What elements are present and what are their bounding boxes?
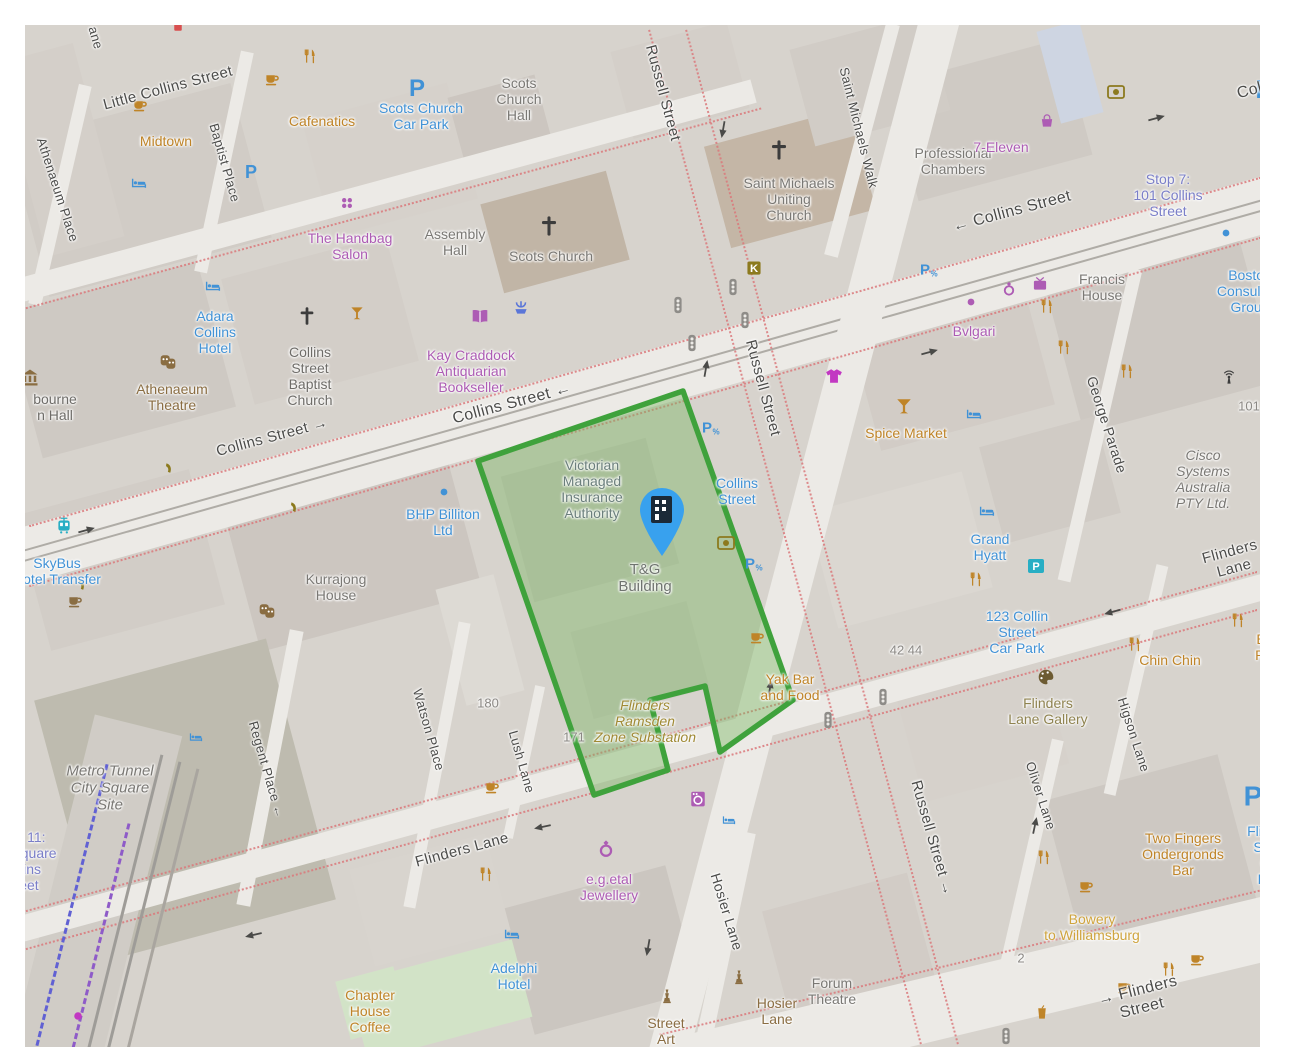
place-label: Midtown — [140, 134, 192, 150]
church-cross-icon — [538, 215, 560, 237]
place-label: Collins Street Baptist Church — [287, 345, 332, 409]
hotel-icon — [505, 927, 520, 942]
traffic-light-icon — [1002, 1027, 1011, 1045]
place-label: Scots Church Car Park — [379, 101, 463, 133]
place-label: Adara Collins Hotel — [194, 309, 236, 357]
street-label: Watson Place — [409, 687, 447, 772]
florist-icon — [340, 196, 355, 211]
parking-icon: P — [242, 162, 260, 180]
drink-icon — [1035, 1005, 1050, 1020]
place-label: bourne n Hall — [33, 392, 77, 424]
place-label: Scots Church — [509, 249, 593, 265]
place-label: Chin Chin — [1139, 653, 1200, 669]
traffic-light-icon — [741, 311, 750, 329]
cafe-icon — [750, 630, 765, 645]
place-label: Stop 7: 101 Collins Street — [1133, 172, 1202, 220]
fountain-icon — [512, 299, 530, 317]
street-label: Russell Street — [642, 43, 684, 143]
place-label: Saint Michaels Uniting Church — [743, 176, 834, 224]
church-cross-icon — [768, 139, 790, 161]
map-canvas[interactable]: PPKP%P%P%PPPLittle Collins StreetCollins… — [25, 25, 1260, 1047]
place-label: Athenaeum Theatre — [136, 382, 208, 414]
hotel-icon — [206, 279, 221, 294]
place-label: Victorian Managed Insurance Authority — [561, 458, 622, 522]
street-label: Flinders Lane — [1200, 536, 1260, 584]
theatre-masks-icon — [159, 353, 177, 371]
theatre-masks-icon — [258, 602, 276, 620]
place-label: Street Art — [647, 1016, 684, 1047]
street-label: Little Collins Street — [101, 62, 234, 113]
bookshop-k-icon: K — [747, 261, 762, 276]
statue-icon — [660, 989, 675, 1004]
street-label: Lush Lane — [505, 729, 537, 795]
oneway-arrow-icon — [638, 938, 659, 959]
svg-text:P: P — [409, 75, 425, 99]
restaurant-icon — [303, 49, 318, 64]
place-label: Bowery to Williamsburg — [1044, 912, 1140, 944]
traffic-light-icon — [688, 334, 697, 352]
street-label: Higson Lane — [1114, 696, 1152, 774]
electronics-icon — [1033, 277, 1048, 292]
restaurant-icon — [1231, 613, 1246, 628]
place-label: Flinders Ramsden Zone Substation — [594, 698, 696, 746]
restaurant-icon — [1128, 637, 1143, 652]
svg-text:K: K — [750, 263, 759, 275]
cafe-icon — [265, 72, 280, 87]
traffic-light-icon — [729, 278, 738, 296]
place-label: Kay Craddock Antiquarian Bookseller — [427, 348, 515, 396]
street-label: Collins Street → — [214, 414, 329, 460]
garage-icon: P — [1027, 557, 1045, 575]
bureau-icon — [717, 534, 735, 552]
house-number: 101 — [1238, 400, 1260, 415]
place-label: 123 Collin Street Car Park — [986, 609, 1048, 657]
street-label: Russell Street → — [907, 778, 956, 897]
place-label: Yak Bar and Food — [760, 672, 819, 704]
place-label: Boston Consulting Group — [1217, 268, 1260, 316]
street-label: ← Collins Street — [951, 187, 1074, 236]
books-icon — [471, 308, 489, 326]
traffic-light-icon — [824, 711, 833, 729]
restaurant-icon — [1057, 340, 1072, 355]
place-label: Grand Hyatt — [971, 532, 1010, 564]
restaurant-icon — [1120, 364, 1135, 379]
street-label: Russell Street — [742, 338, 784, 438]
hotel-icon — [132, 176, 147, 191]
svg-text:P: P — [702, 420, 712, 437]
place-label: Assembly Hall — [425, 227, 486, 259]
dot-icon — [1222, 229, 1231, 238]
svg-text:%: % — [930, 270, 937, 279]
place-label: Cafenatics — [289, 114, 355, 130]
oneway-arrow-icon — [76, 519, 98, 541]
place-label: Bvlgari — [953, 324, 996, 340]
building-icon — [651, 496, 672, 523]
street-label: George Parade — [1083, 375, 1129, 476]
place-label: Hosier Lane — [757, 996, 797, 1028]
oneway-arrow-icon — [713, 120, 734, 141]
street-label: Saint Michaels Walk — [836, 66, 880, 190]
hotel-icon — [723, 814, 736, 827]
street-label: Regent Place ← — [245, 720, 287, 820]
place-label: Collins Street — [716, 476, 758, 508]
street-label: Hosier Lane — [707, 871, 746, 952]
phone-icon — [285, 502, 300, 517]
townhall-icon — [25, 367, 40, 387]
place-label: Kurrajong House — [306, 572, 367, 604]
place-label: T&G Building — [618, 561, 671, 595]
street-label: → Flinders Street — [1077, 968, 1202, 1032]
cafe-icon — [485, 780, 500, 795]
place-label: e.g.etal Jewellery — [580, 872, 638, 904]
place-label: Forum Theatre — [808, 976, 856, 1008]
house-number: 180 — [477, 697, 499, 712]
edge-marker-icon — [173, 25, 183, 32]
restaurant-icon — [479, 867, 494, 882]
street-label: ane — [85, 25, 106, 51]
bar-icon — [895, 397, 913, 415]
location-pin[interactable] — [636, 486, 688, 563]
place-label: Chapter House Coffee — [345, 988, 395, 1036]
place-label: SkyBus Hotel Transfer — [25, 556, 101, 588]
place-label: Two Fingers Ondergronds Bar — [1142, 831, 1224, 879]
place-label: Adelphi Hotel — [491, 961, 538, 993]
restaurant-icon — [1037, 850, 1052, 865]
oneway-arrow-icon — [1146, 107, 1168, 129]
cafe-icon — [68, 594, 83, 609]
laundry-icon — [689, 790, 707, 808]
oneway-arrow-icon — [919, 341, 941, 363]
oneway-arrow-icon — [1101, 601, 1123, 623]
place-label: Flinders Lane Gallery — [1008, 696, 1087, 728]
oneway-arrow-icon — [242, 924, 264, 946]
place-label: BHP Billiton Ltd — [406, 507, 480, 539]
svg-text:P: P — [745, 556, 755, 573]
statue-icon — [732, 970, 747, 985]
parking-icon: P — [405, 75, 429, 99]
phone-icon — [160, 463, 175, 478]
svg-text:%: % — [755, 564, 762, 573]
oneway-arrow-icon — [696, 358, 717, 379]
house-number: 171 — [563, 731, 585, 746]
cafe-icon — [1190, 952, 1205, 967]
place-label: Cisco Systems Australia PTY Ltd. — [1175, 448, 1232, 512]
svg-text:P: P — [1032, 561, 1039, 573]
dot-icon — [440, 488, 449, 497]
palette-icon — [1037, 668, 1055, 686]
parking-icon: P — [1239, 781, 1260, 809]
convenience-icon — [1040, 114, 1055, 129]
place-label: The Handbag Salon — [308, 231, 393, 263]
place-label: Spice Market — [865, 426, 947, 442]
restaurant-icon — [969, 572, 984, 587]
map-screenshot: PPKP%P%P%PPPLittle Collins StreetCollins… — [0, 0, 1291, 1050]
place-label: Scots Church Hall — [496, 76, 541, 124]
place-label: 7-Eleven — [973, 140, 1028, 156]
place-label: Bull Run — [1255, 632, 1260, 664]
bar-icon — [350, 306, 365, 321]
place-label: Stop 11: City Square Collins Street — [25, 830, 57, 894]
street-label: Athenaeum Place — [33, 136, 81, 244]
svg-text:P: P — [245, 162, 257, 180]
svg-text:%: % — [712, 428, 719, 437]
oneway-arrow-icon — [531, 816, 552, 837]
clothes-icon — [825, 367, 843, 385]
parking-paid-icon: P% — [744, 553, 764, 573]
house-number: 42 44 — [890, 644, 923, 659]
church-cross-icon — [297, 306, 317, 326]
jewelry-icon — [597, 840, 615, 858]
place-label: Metro Tunnel City Square Site — [66, 762, 153, 813]
jewelry-icon — [1002, 282, 1017, 297]
place-label: Francis House — [1079, 272, 1125, 304]
traffic-light-icon — [674, 296, 683, 314]
parking-paid-icon: P% — [701, 417, 721, 437]
cafe-icon — [1079, 879, 1094, 894]
dot-icon — [73, 1011, 83, 1021]
bureau-icon — [1107, 83, 1125, 101]
traffic-light-icon — [879, 688, 888, 706]
street-label: Flinders Lane — [413, 829, 510, 870]
tram-icon — [55, 516, 73, 534]
hotel-icon — [190, 731, 203, 744]
svg-text:P: P — [1244, 781, 1260, 809]
place-label: 114 Flinders Street Car Park — [1247, 808, 1260, 888]
hotel-icon — [980, 504, 995, 519]
street-label: Baptist Place — [206, 122, 243, 204]
svg-text:P: P — [920, 262, 930, 279]
dot-icon — [967, 298, 976, 307]
hotel-icon — [967, 407, 982, 422]
antenna-icon — [1222, 370, 1237, 385]
house-number: 2 — [1017, 952, 1024, 967]
parking-paid-icon: P% — [919, 259, 939, 279]
restaurant-icon — [1040, 299, 1055, 314]
